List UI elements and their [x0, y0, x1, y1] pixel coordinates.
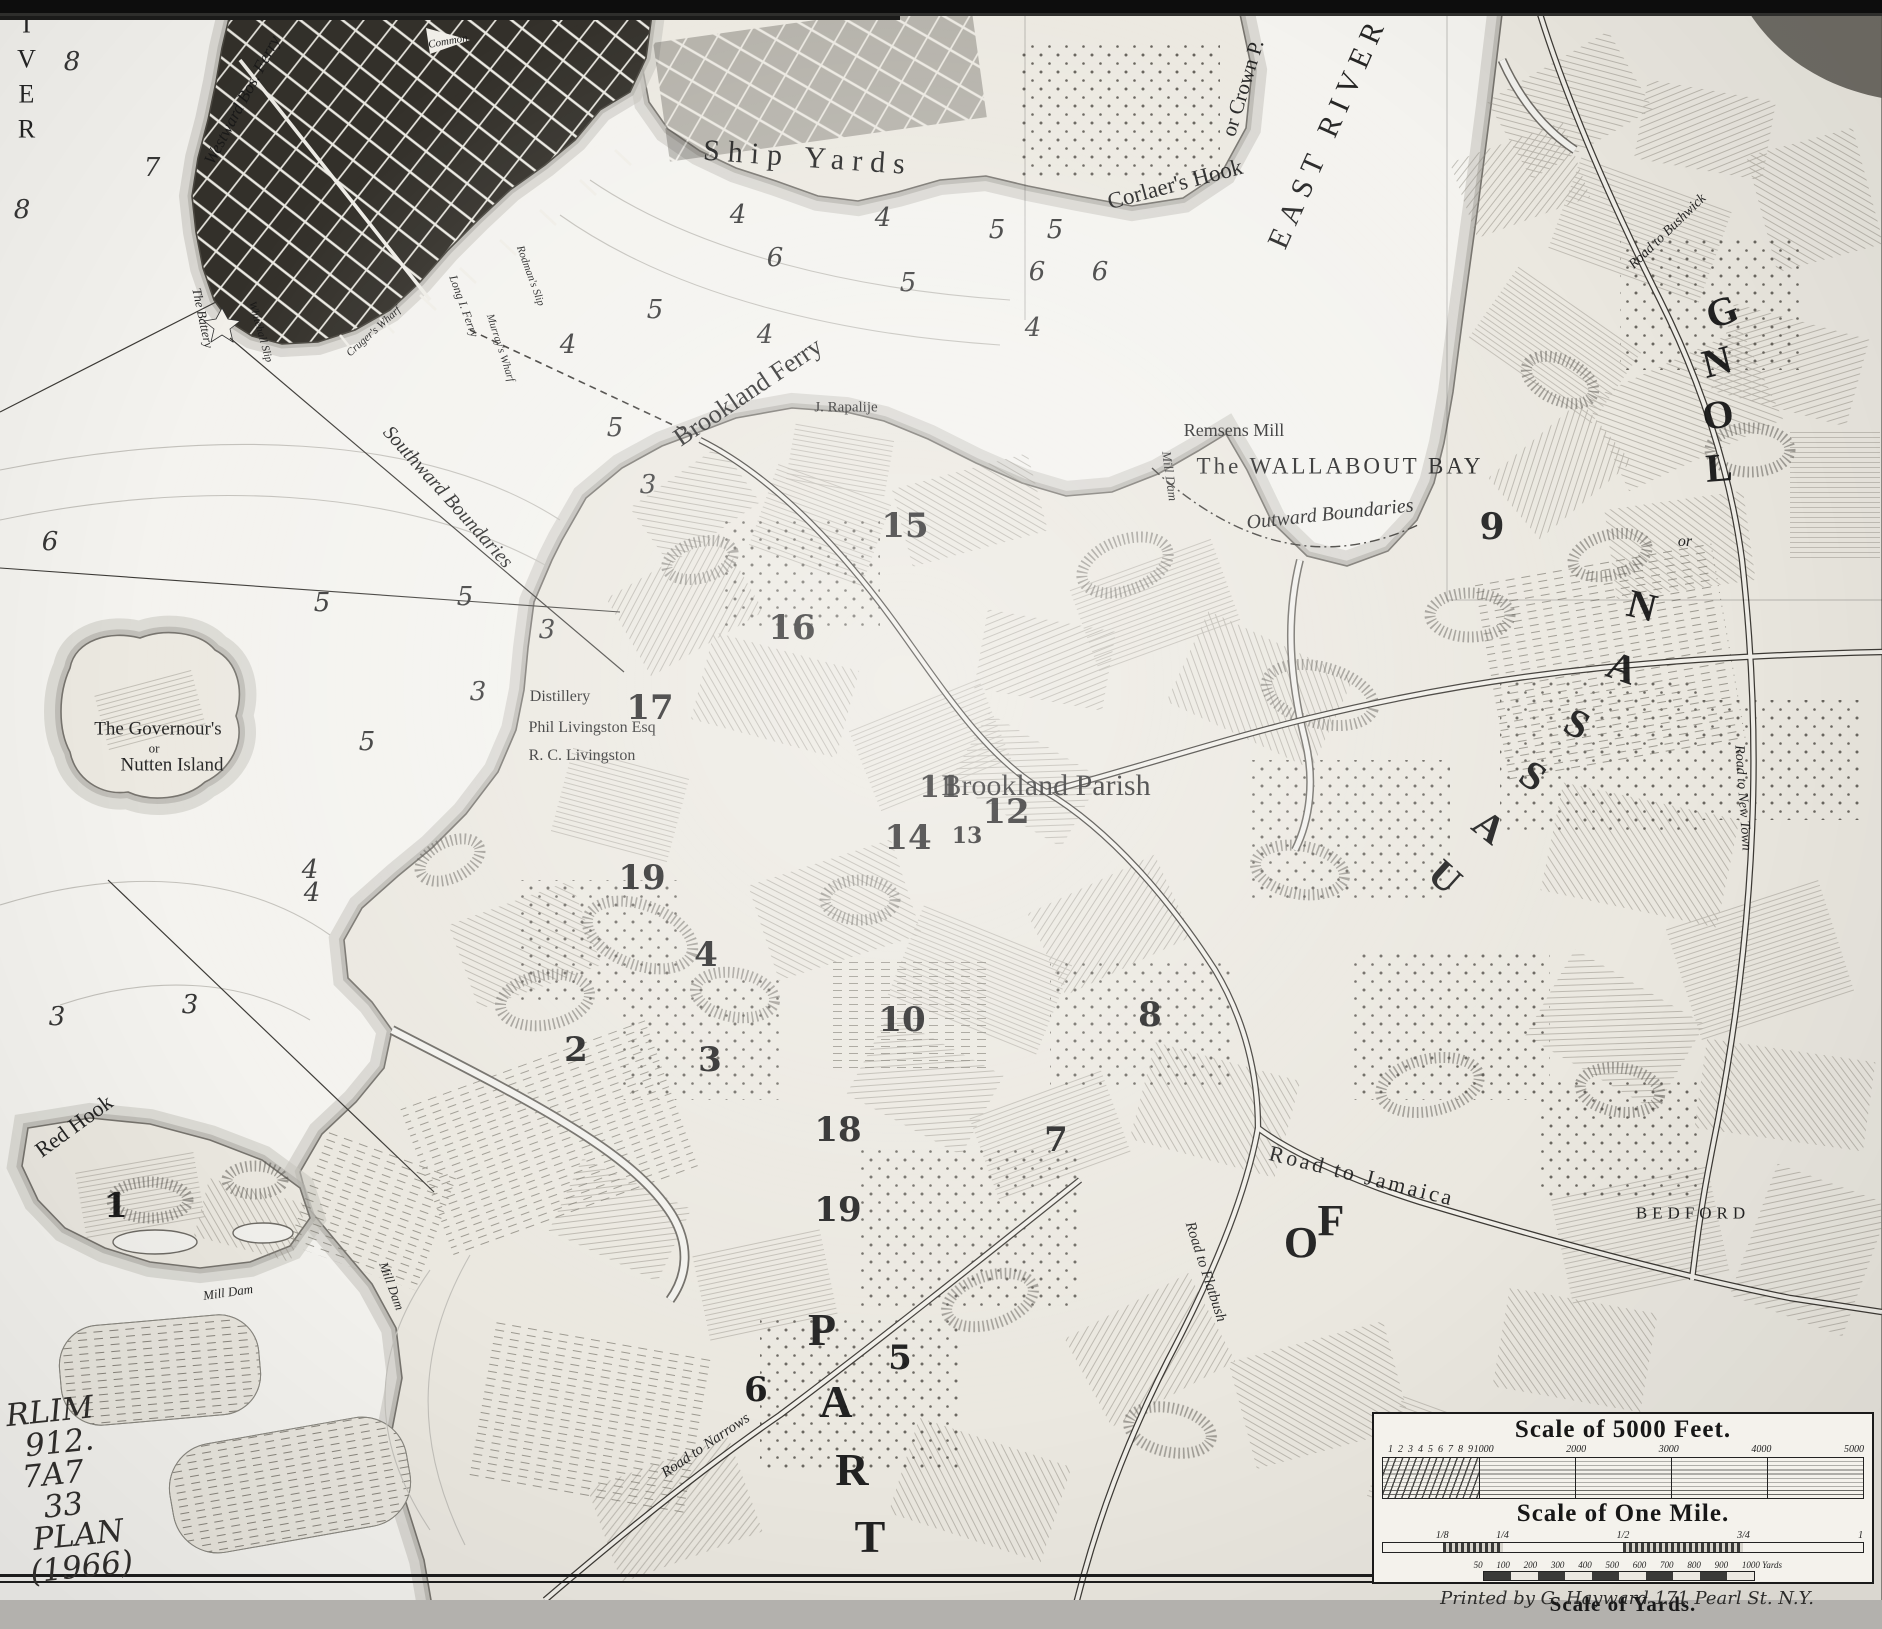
label-governours-island-2: or — [149, 742, 160, 755]
sounding: 7 — [144, 155, 161, 181]
label-road-to-flatbush: Road to Flatbush — [1182, 1220, 1228, 1324]
sounding: 4 — [560, 332, 577, 358]
label-governours-island-3: Nutten Island — [121, 756, 224, 775]
feet-tick-label: 2000 — [1566, 1444, 1586, 1455]
letter-part-p: P — [808, 1307, 836, 1353]
feet-tick-label: 4000 — [1751, 1444, 1771, 1455]
scale-mile-ticks: 1/81/41/23/41 — [1382, 1530, 1864, 1542]
sounding: 8 — [14, 197, 31, 223]
scale-feet-bar — [1382, 1457, 1864, 1499]
feet-tick-label: 1000 — [1474, 1444, 1494, 1455]
yards-tick-label: 900 — [1715, 1560, 1729, 1571]
feet-tick-label: 3 — [1408, 1444, 1413, 1455]
letter-part-r: R — [835, 1447, 868, 1493]
feet-tick-label: 5 — [1428, 1444, 1433, 1455]
handwritten-catalog-mark: RLIM912.7A733PLAN(1966) — [4, 1390, 134, 1590]
feet-tick-label: 1 — [1388, 1444, 1393, 1455]
label-j-rapalije: J. Rapalije — [814, 401, 877, 416]
letter-long-n: N — [1698, 339, 1736, 385]
farm-number-19a: 19 — [618, 861, 665, 895]
label-whitehall-slip: Whitehall Slip — [246, 300, 274, 363]
sounding: 5 — [457, 584, 474, 610]
label-road-to-jamaica: Road to Jamaica — [1267, 1142, 1457, 1209]
label-long-i-ferry: Long I. Ferry — [447, 273, 481, 338]
label-the-battery: The Battery — [190, 287, 215, 349]
letter-long-g: G — [1701, 288, 1744, 336]
feet-tick-label: 4 — [1418, 1444, 1423, 1455]
scale-mile-title: Scale of One Mile. — [1382, 1500, 1864, 1528]
farm-number-1: 1 — [104, 1189, 128, 1223]
farm-number-7: 7 — [1044, 1123, 1068, 1157]
label-road-to-new-town: Road to New Town — [1731, 745, 1752, 851]
label-outward-boundaries: Outward Boundaries — [1246, 495, 1415, 532]
feet-tick-label: 9 — [1468, 1444, 1473, 1455]
sounding: 4 — [1025, 315, 1042, 341]
mile-tick-label: 1/2 — [1617, 1530, 1630, 1541]
scale-yards-ruler: 501002003004005006007008009001000 Yards — [1382, 1560, 1864, 1590]
letter-nassau-a1: A — [1602, 644, 1643, 691]
letter-nassau-s1: S — [1558, 701, 1596, 747]
sounding: 5 — [647, 297, 664, 323]
label-westward-ferry: Westward Bos. Ferry — [201, 33, 283, 167]
scale-mile-ruler: 1/81/41/23/41 — [1382, 1530, 1864, 1558]
yards-tick-label: 500 — [1605, 1560, 1619, 1571]
mile-tick-label: 1/4 — [1496, 1530, 1509, 1541]
farm-number-2: 2 — [564, 1033, 588, 1067]
letter-nassau-a2: A — [1465, 802, 1512, 851]
label-common: Common — [427, 33, 468, 51]
sounding: 5 — [314, 590, 331, 616]
label-rc-livingston: R. C. Livingston — [529, 748, 636, 764]
feet-tick-label: 8 — [1458, 1444, 1463, 1455]
farm-number-12: 12 — [982, 795, 1029, 829]
sounding: 3 — [49, 1004, 66, 1030]
label-road-to-bushwick: Road to Bushwick — [1627, 192, 1709, 272]
feet-tick-label: 7 — [1448, 1444, 1453, 1455]
label-southward-boundaries: Southward Boundaries — [379, 422, 516, 571]
farm-number-13: 13 — [952, 825, 983, 847]
sounding: 4 — [730, 202, 747, 228]
yards-tick-label: 50 — [1474, 1560, 1483, 1571]
scale-panel: Scale of 5000 Feet. 123456789 1000200030… — [1372, 1412, 1874, 1584]
farm-number-10: 10 — [878, 1003, 925, 1037]
feet-tick-label: 2 — [1398, 1444, 1403, 1455]
map-sheet: RIVEREAST RIVERShip YardsCorlaer's Hooko… — [0, 0, 1882, 1629]
sounding: 3 — [640, 472, 657, 498]
label-governours-island-1: The Governour's — [94, 720, 221, 739]
sounding: 3 — [182, 992, 199, 1018]
sounding: 5 — [359, 729, 376, 755]
yards-tick-label: 600 — [1633, 1560, 1647, 1571]
label-or-nassau: or — [1678, 534, 1692, 550]
letter-long-o: O — [1700, 393, 1736, 437]
top-border-rule-3 — [0, 16, 900, 20]
yards-tick-label: 300 — [1551, 1560, 1565, 1571]
letter-part-t: T — [855, 1514, 886, 1560]
label-brookland-parish: Brookland Parish — [941, 771, 1150, 801]
label-mill-dam-1: Mill Dam — [202, 1282, 254, 1302]
scale-mile-bar — [1382, 1542, 1864, 1553]
label-bedford: BEDFORD — [1636, 1205, 1750, 1222]
yards-tick-label: 200 — [1524, 1560, 1538, 1571]
yards-tick-label: 700 — [1660, 1560, 1674, 1571]
sounding: 5 — [607, 415, 624, 441]
feet-tick-label: 5000 — [1844, 1444, 1864, 1455]
letter-nassau-u: U — [1421, 852, 1469, 901]
scale-feet-ruler: 123456789 10002000300040005000 — [1382, 1444, 1864, 1500]
farm-number-15: 15 — [881, 509, 928, 543]
sounding: 5 — [900, 270, 917, 296]
sounding: 6 — [1029, 259, 1046, 285]
farm-number-4: 4 — [694, 938, 718, 972]
top-border-rule — [0, 0, 1882, 13]
scale-yards-ticks: 501002003004005006007008009001000 Yards — [1474, 1560, 1782, 1571]
letter-of-f: F — [1318, 1199, 1345, 1243]
scale-yards-bar — [1483, 1571, 1755, 1581]
label-mill-dam-3: Mill Dam — [1160, 450, 1180, 502]
mile-tick-label: 1/8 — [1436, 1530, 1449, 1541]
map-scan: RIVEREAST RIVERShip YardsCorlaer's Hooko… — [0, 0, 1882, 1629]
label-red-hook: Red Hook — [31, 1091, 117, 1162]
map-labels: RIVEREAST RIVERShip YardsCorlaer's Hooko… — [0, 0, 1882, 1629]
farm-number-17: 17 — [626, 691, 673, 725]
mile-tick-label: 3/4 — [1737, 1530, 1750, 1541]
label-east-river: EAST RIVER — [1263, 11, 1393, 253]
sounding: 3 — [470, 679, 487, 705]
yards-tick-label: 1000 Yards — [1742, 1560, 1782, 1571]
scale-feet-ticks: 123456789 10002000300040005000 — [1382, 1444, 1864, 1457]
bottom-border-rule — [0, 1574, 1378, 1577]
mile-tick-label: 1 — [1858, 1530, 1863, 1541]
label-murrays-wharf: Murray's Wharf — [484, 313, 516, 383]
label-brookland-ferry: Brookland Ferry — [669, 333, 827, 451]
scale-feet-title: Scale of 5000 Feet. — [1382, 1416, 1864, 1444]
letter-nassau-n: N — [1623, 583, 1661, 629]
farm-number-11: 11 — [919, 773, 961, 803]
sounding: 6 — [1092, 259, 1109, 285]
label-river-west: RIVER — [13, 0, 39, 150]
farm-number-9: 9 — [1479, 509, 1504, 545]
sounding: 6 — [42, 529, 59, 555]
sounding: 4 — [757, 322, 774, 348]
farm-number-8: 8 — [1138, 998, 1162, 1032]
sounding: 4 — [875, 205, 892, 231]
sounding: 3 — [539, 617, 556, 643]
farm-number-5: 5 — [888, 1341, 912, 1375]
feet-tick-label: 6 — [1438, 1444, 1443, 1455]
label-corlaers-hook: Corlaer's Hook — [1105, 155, 1245, 213]
label-wallabout-bay: The WALLABOUT BAY — [1197, 455, 1484, 478]
sounding: 5 — [989, 217, 1006, 243]
label-rodmans-slip: Rodman's Slip — [514, 244, 546, 307]
yards-tick-label: 400 — [1578, 1560, 1592, 1571]
sounding: 6 — [767, 245, 784, 271]
letter-long-l: L — [1704, 447, 1733, 489]
yards-tick-label: 800 — [1687, 1560, 1701, 1571]
farm-number-16: 16 — [768, 611, 815, 645]
letter-of-o: O — [1284, 1221, 1318, 1265]
label-road-to-narrows: Road to Narrows — [659, 1411, 753, 1481]
bottom-border-rule-2 — [0, 1581, 1378, 1583]
farm-number-6: 6 — [744, 1373, 768, 1407]
label-remsens-mill: Remsens Mill — [1184, 421, 1285, 439]
yards-tick-label: 100 — [1496, 1560, 1510, 1571]
label-crugers-wharf: Cruger's Wharf — [345, 305, 403, 359]
letter-nassau-s2: S — [1513, 753, 1554, 799]
farm-number-18: 18 — [814, 1113, 861, 1147]
label-ship-yards: Ship Yards — [702, 136, 914, 181]
letter-part-a: A — [819, 1379, 852, 1425]
printer-imprint: Printed by G. Hayward 171 Pearl St. N.Y. — [1380, 1590, 1874, 1608]
sounding: 8 — [64, 49, 81, 75]
farm-number-14: 14 — [884, 821, 931, 855]
sounding: 4 — [304, 880, 321, 906]
label-distillery: Distillery — [530, 689, 590, 705]
label-mill-dam-2: Mill Dam — [377, 1260, 406, 1312]
label-or-crown-p: or Crown P. — [1218, 37, 1267, 139]
feet-tick-label: 3000 — [1659, 1444, 1679, 1455]
farm-number-19b: 19 — [814, 1193, 861, 1227]
sounding: 5 — [1047, 217, 1064, 243]
farm-number-3: 3 — [698, 1043, 722, 1077]
